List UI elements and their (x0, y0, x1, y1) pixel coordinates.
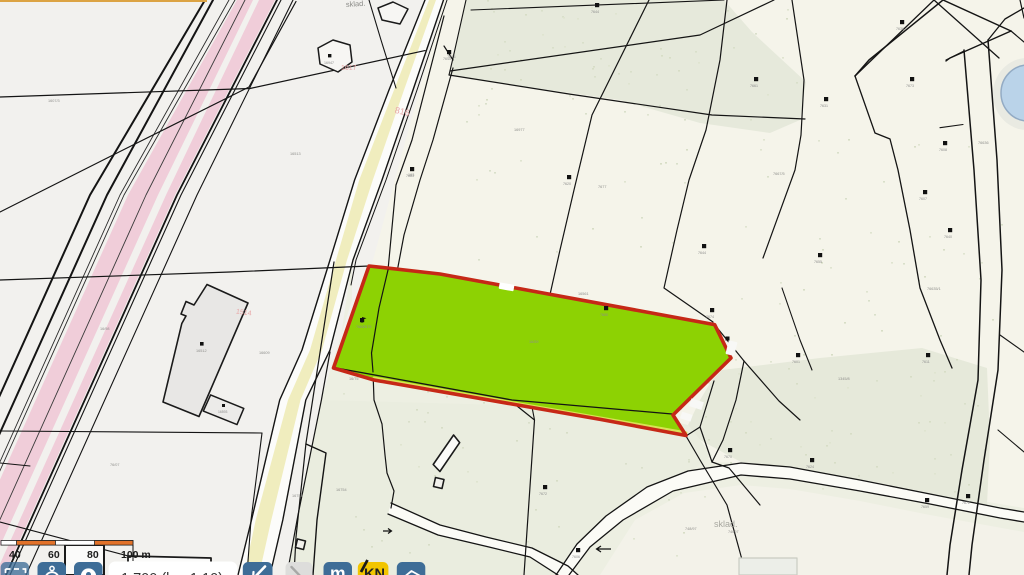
svg-text:16753: 16753 (292, 494, 303, 498)
svg-text:7606: 7606 (572, 555, 580, 559)
svg-text:80: 80 (87, 549, 99, 561)
svg-text:7670: 7670 (724, 455, 732, 459)
svg-text:7675: 7675 (363, 325, 371, 329)
svg-text:7661: 7661 (750, 84, 758, 88)
svg-text:7672: 7672 (962, 501, 970, 505)
svg-text:7631: 7631 (820, 104, 828, 108)
svg-text:1:700 (k = 1:10): 1:700 (k = 1:10) (121, 571, 223, 575)
svg-text:16/98: 16/98 (100, 327, 110, 331)
svg-text:7667/5: 7667/5 (773, 172, 785, 176)
svg-text:7673: 7673 (447, 55, 455, 59)
svg-text:sklad.: sklad. (346, 0, 366, 9)
svg-text:7673: 7673 (906, 84, 914, 88)
svg-text:7608: 7608 (939, 148, 947, 152)
svg-text:7674: 7674 (706, 315, 714, 319)
svg-text:76635/1: 76635/1 (927, 287, 941, 291)
svg-text:7659: 7659 (921, 505, 929, 509)
svg-text:7677: 7677 (598, 185, 606, 189)
svg-text:16754: 16754 (336, 488, 347, 492)
svg-text:16561: 16561 (578, 292, 589, 296)
svg-text:7655: 7655 (814, 260, 822, 264)
svg-text:7607: 7607 (919, 197, 927, 201)
svg-text:16977: 16977 (514, 128, 525, 132)
svg-text:m: m (330, 563, 346, 575)
svg-text:7620: 7620 (563, 182, 571, 186)
svg-text:1345/8: 1345/8 (838, 377, 850, 381)
svg-text:7672: 7672 (539, 492, 547, 496)
svg-text:16512: 16512 (196, 349, 207, 353)
svg-text:16513: 16513 (290, 152, 301, 156)
svg-text:16609: 16609 (259, 351, 270, 355)
svg-text:1617: 1617 (341, 65, 357, 72)
svg-text:7644: 7644 (591, 10, 599, 14)
svg-text:16947: 16947 (324, 61, 334, 65)
svg-text:100 m: 100 m (121, 549, 151, 561)
svg-text:76636: 76636 (978, 141, 989, 145)
svg-text:163: 163 (408, 173, 414, 177)
svg-text:7636: 7636 (896, 27, 904, 31)
svg-text:sklad.: sklad. (714, 519, 738, 529)
svg-text:748/97: 748/97 (685, 527, 697, 531)
svg-text:7640: 7640 (944, 235, 952, 239)
svg-text:40: 40 (9, 549, 21, 561)
svg-text:16593: 16593 (218, 410, 228, 414)
svg-text:7601: 7601 (792, 360, 800, 364)
svg-text:7624: 7624 (806, 465, 814, 469)
svg-text:74697: 74697 (728, 530, 739, 534)
svg-text:60: 60 (48, 549, 60, 561)
svg-text:KN: KN (364, 567, 385, 575)
svg-text:7611: 7611 (922, 360, 930, 364)
svg-text:16/59: 16/59 (529, 340, 539, 344)
svg-text:1607/3: 1607/3 (48, 99, 60, 103)
svg-text:7644: 7644 (698, 251, 706, 255)
svg-text:76/07: 76/07 (110, 463, 120, 467)
svg-text:16/75: 16/75 (349, 377, 359, 381)
svg-text:7650: 7650 (600, 313, 608, 317)
